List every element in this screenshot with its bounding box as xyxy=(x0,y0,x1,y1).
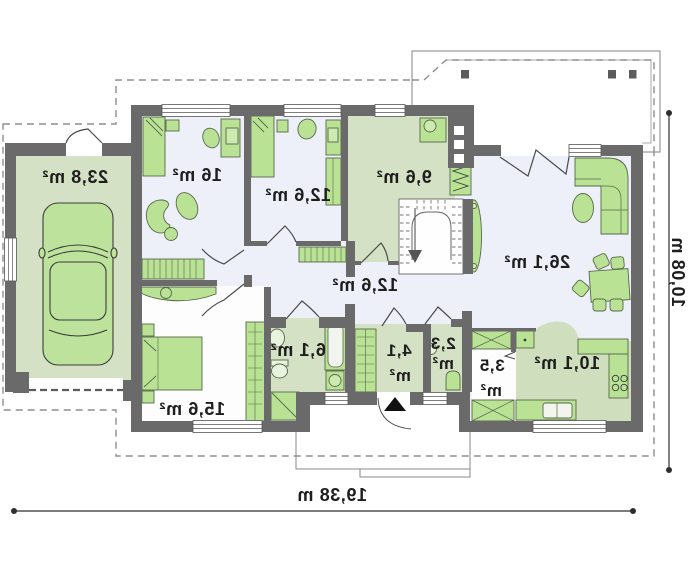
svg-text:26,1 m²: 26,1 m² xyxy=(504,252,570,272)
svg-text:m²: m² xyxy=(389,366,411,385)
svg-text:19,38 m: 19,38 m xyxy=(297,485,367,505)
svg-text:10,08 m: 10,08 m xyxy=(668,237,688,307)
svg-text:10,1 m²: 10,1 m² xyxy=(534,353,600,373)
svg-text:12,6 m²: 12,6 m² xyxy=(332,275,398,295)
svg-text:m²: m² xyxy=(432,354,454,373)
svg-text:3,5: 3,5 xyxy=(479,356,504,375)
svg-text:m²: m² xyxy=(480,381,502,400)
svg-text:4,1: 4,1 xyxy=(386,341,411,360)
svg-text:23,8 m²: 23,8 m² xyxy=(42,167,108,187)
svg-text:15,6 m²: 15,6 m² xyxy=(159,399,225,419)
svg-text:6,1 m²: 6,1 m² xyxy=(270,340,326,360)
svg-text:16 m²: 16 m² xyxy=(172,165,222,185)
svg-text:12,6 m²: 12,6 m² xyxy=(265,185,331,205)
svg-text:9,6 m²: 9,6 m² xyxy=(376,167,432,187)
svg-text:2,3: 2,3 xyxy=(430,334,455,353)
